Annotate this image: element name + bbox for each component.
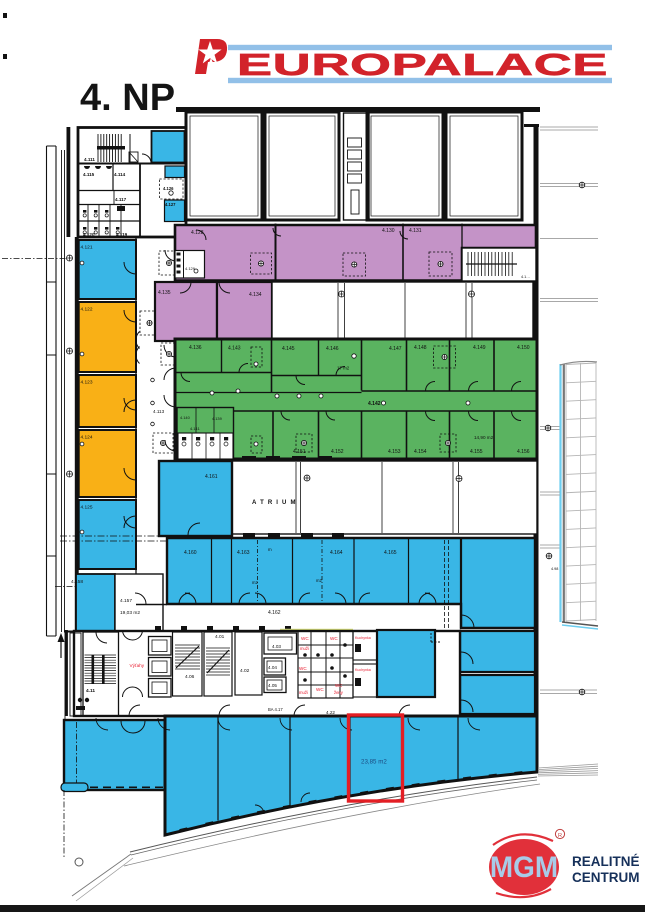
svg-text:4.124: 4.124 [81, 435, 93, 441]
svg-text:CENTRUM: CENTRUM [572, 870, 640, 885]
svg-text:BA 4.17: BA 4.17 [268, 707, 283, 712]
svg-text:4.150: 4.150 [517, 345, 530, 351]
svg-text:4.135: 4.135 [158, 290, 171, 296]
svg-text:4.146: 4.146 [326, 346, 339, 352]
svg-text:4.01: 4.01 [215, 634, 225, 640]
svg-text:4.125: 4.125 [81, 505, 93, 511]
svg-text:4.119: 4.119 [116, 232, 128, 237]
svg-text:4.163: 4.163 [237, 550, 250, 556]
svg-text:4.04: 4.04 [268, 665, 277, 670]
svg-text:4.161: 4.161 [205, 474, 218, 480]
svg-text:4.02: 4.02 [240, 668, 250, 674]
svg-text:4.06: 4.06 [185, 674, 195, 680]
svg-text:WC: WC [335, 683, 342, 688]
svg-text:4.145: 4.145 [282, 346, 295, 352]
svg-text:4.131: 4.131 [409, 228, 422, 234]
svg-text:4.130: 4.130 [382, 228, 395, 234]
svg-text:4.03: 4.03 [272, 644, 281, 649]
svg-text:muži: muži [300, 646, 309, 651]
svg-text:WC: WC [301, 636, 309, 641]
svg-text:EUROPALACE: EUROPALACE [237, 48, 608, 83]
svg-text:4.156: 4.156 [517, 449, 530, 455]
svg-text:4.164: 4.164 [330, 550, 343, 556]
svg-text:23,85 m2: 23,85 m2 [361, 759, 387, 766]
svg-text:4.141: 4.141 [190, 426, 200, 431]
svg-text:m2: m2 [316, 578, 322, 583]
svg-text:4. NP: 4. NP [80, 77, 175, 119]
svg-text:4.05: 4.05 [268, 683, 277, 688]
svg-text:14,90 m2: 14,90 m2 [474, 435, 494, 440]
svg-text:4.117: 4.117 [115, 197, 127, 202]
svg-text:WC: WC [299, 666, 307, 671]
svg-text:Kuchynka: Kuchynka [355, 636, 371, 640]
svg-text:4.149: 4.149 [473, 345, 486, 351]
svg-text:Výťahy: Výťahy [130, 663, 145, 668]
svg-text:4.154: 4.154 [414, 449, 427, 455]
svg-text:A T R I U M: A T R I U M [252, 500, 297, 506]
svg-text:4.148: 4.148 [414, 345, 427, 351]
svg-text:4.157: 4.157 [120, 598, 132, 604]
svg-text:4.139: 4.139 [212, 416, 222, 421]
svg-text:4.123: 4.123 [81, 380, 93, 386]
svg-text:WC: WC [316, 687, 324, 692]
svg-text:4.127: 4.127 [165, 202, 176, 207]
svg-text:4.114: 4.114 [114, 172, 126, 177]
svg-text:4.140: 4.140 [180, 415, 191, 420]
svg-text:4.98: 4.98 [551, 567, 558, 571]
svg-text:4.134: 4.134 [249, 292, 262, 298]
svg-text:4.115: 4.115 [83, 172, 95, 177]
svg-text:4.147: 4.147 [389, 346, 402, 352]
svg-text:m2: m2 [252, 580, 258, 585]
svg-text:REALITNÉ: REALITNÉ [572, 854, 640, 869]
svg-text:4.122: 4.122 [81, 307, 93, 313]
svg-text:4.128: 4.128 [191, 230, 204, 236]
svg-text:muži: muži [299, 690, 308, 695]
svg-text:4.142: 4.142 [368, 401, 381, 407]
svg-text:4.113: 4.113 [153, 409, 165, 414]
svg-text:4.143: 4.143 [228, 346, 241, 352]
svg-text:4.136: 4.136 [189, 345, 202, 351]
svg-text:4.11: 4.11 [86, 688, 95, 694]
svg-text:4.111: 4.111 [84, 157, 95, 162]
svg-text:ženy: ženy [334, 690, 344, 695]
svg-text:4.120: 4.120 [83, 232, 95, 237]
svg-text:4.153: 4.153 [388, 449, 401, 455]
svg-text:WC: WC [330, 636, 338, 641]
svg-text:4.22: 4.22 [326, 710, 335, 715]
svg-text:4.155: 4.155 [470, 449, 483, 455]
svg-text:4.151: 4.151 [293, 449, 306, 455]
svg-text:4.158: 4.158 [71, 579, 83, 585]
svg-text:MGM: MGM [490, 851, 558, 884]
svg-text:4.126: 4.126 [163, 186, 174, 191]
svg-text:4.1…: 4.1… [521, 275, 530, 279]
svg-text:4.152: 4.152 [331, 449, 344, 455]
svg-text:Kuchynka: Kuchynka [355, 668, 371, 672]
svg-text:17 m2: 17 m2 [337, 366, 350, 371]
svg-text:19,03 m2: 19,03 m2 [120, 610, 140, 616]
svg-text:4.165: 4.165 [384, 550, 397, 556]
svg-text:4.162: 4.162 [268, 610, 281, 616]
svg-text:R: R [558, 833, 562, 839]
svg-text:4.160: 4.160 [184, 550, 197, 556]
svg-text:4.129: 4.129 [185, 266, 196, 271]
svg-text:4.121: 4.121 [81, 245, 93, 251]
svg-text:m: m [268, 547, 272, 552]
